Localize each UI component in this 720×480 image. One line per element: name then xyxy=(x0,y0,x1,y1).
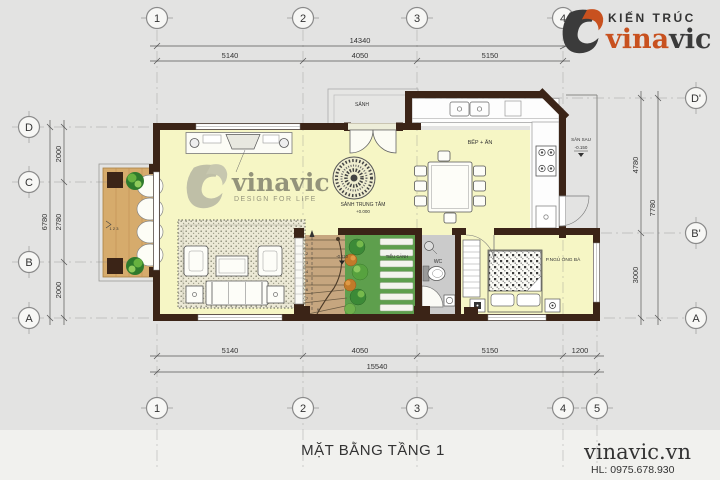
brand-name-vic: vic xyxy=(668,24,711,55)
axis-bubble-label: 4 xyxy=(560,403,566,415)
dim-left-total: 6780 xyxy=(40,214,49,231)
label-wc: WC xyxy=(434,259,443,265)
dim: 5150 xyxy=(482,51,499,60)
stepping-stones xyxy=(380,239,413,312)
label-backyard-level: -0.150 xyxy=(575,145,588,150)
floor-plan-drawing: 1 2 3 4 5 6 7 8 9 xyxy=(0,0,720,480)
dim: 2780 xyxy=(54,214,63,231)
axis-bubble-label: 1 xyxy=(154,13,160,25)
label-bedroom: P.NGỦ ÔNG BÀ xyxy=(546,256,581,263)
website: vinavic.vn xyxy=(583,440,691,464)
label-garden-level: -0.110 xyxy=(336,254,348,259)
door-tag xyxy=(414,306,430,315)
axis-bubble-label: D xyxy=(25,122,33,134)
watermark-name: vinavic xyxy=(231,168,330,197)
label-garden: TIỂU CẢNH xyxy=(386,254,409,259)
entry-steps xyxy=(328,89,418,126)
axis-bubble-label: 3 xyxy=(414,403,420,415)
door-tag xyxy=(294,306,310,315)
label-kitchen: BẾP + ĂN xyxy=(468,139,493,146)
label-entry: SẢNH xyxy=(355,101,369,108)
dim-right-total: 7780 xyxy=(648,200,657,217)
dim: 2000 xyxy=(54,146,63,163)
axis-bubble-label: 3 xyxy=(414,13,420,25)
dim: 2000 xyxy=(54,282,63,299)
dim: 5140 xyxy=(222,346,239,355)
dim: 4780 xyxy=(631,157,640,174)
label-porch-steps: 1 2 3 xyxy=(110,226,120,231)
label-hall-level: +0.000 xyxy=(356,209,370,214)
dim: 5150 xyxy=(482,346,499,355)
dim-top-total: 14340 xyxy=(350,36,371,45)
brand-name: vinavic xyxy=(605,24,711,55)
dim: 3000 xyxy=(631,267,640,284)
dim-bottom-total: 15540 xyxy=(367,362,388,371)
label-backyard: SÂN SAU xyxy=(571,136,591,142)
floor-plan-sheet: 1 2 3 4 5 6 7 8 9 xyxy=(0,0,720,480)
drawing-title: MẶT BẰNG TẦNG 1 xyxy=(301,441,445,459)
brand-name-vina: vina xyxy=(605,24,669,55)
axis-bubble-label: 1 xyxy=(154,403,160,415)
axis-bubble-label: D' xyxy=(691,93,701,105)
axis-bubble-label: C xyxy=(25,177,33,189)
axis-bubble-label: 2 xyxy=(300,403,306,415)
axis-bubble-label: A xyxy=(25,313,33,325)
hall-rosette xyxy=(333,157,375,199)
axis-bubble-label: 2 xyxy=(300,13,306,25)
label-hall: SẢNH TRUNG TÂM xyxy=(341,201,386,208)
axis-bubble-label: 5 xyxy=(594,403,600,415)
porch-opening xyxy=(154,172,160,270)
dim: 4050 xyxy=(352,346,369,355)
watermark-tagline: DESIGN FOR LIFE xyxy=(234,196,317,203)
brand-kien-truc: KIẾN TRÚC xyxy=(608,10,696,25)
axis-bubble-label: B' xyxy=(691,228,700,240)
dim: 4050 xyxy=(352,51,369,60)
window-tag xyxy=(464,307,478,315)
dim: 5140 xyxy=(222,51,239,60)
axis-bubble-label: B xyxy=(25,257,32,269)
dim: 1200 xyxy=(572,346,589,355)
hotline: HL: 0975.678.930 xyxy=(591,464,675,476)
axis-bubble-label: A xyxy=(692,313,700,325)
